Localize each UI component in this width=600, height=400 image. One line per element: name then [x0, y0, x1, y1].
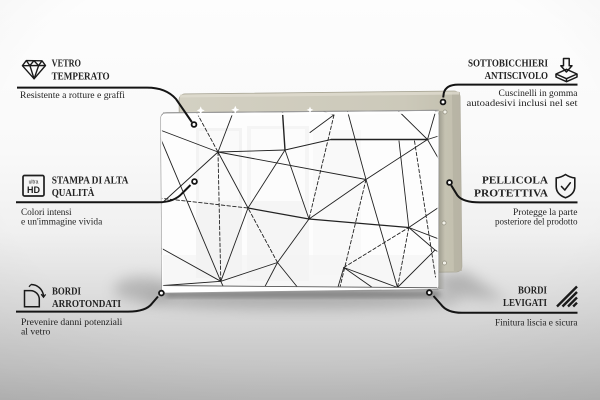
svg-text:Resistente a rotture e graffi: Resistente a rotture e graffi [20, 90, 125, 101]
svg-text:BORDI: BORDI [52, 287, 81, 298]
svg-text:posteriore del prodotto: posteriore del prodotto [495, 217, 578, 227]
svg-text:Finitura liscia e sicura: Finitura liscia e sicura [495, 318, 578, 328]
svg-text:HD: HD [27, 185, 40, 195]
svg-text:Cuscinelli in gomma: Cuscinelli in gomma [499, 89, 579, 99]
svg-text:PROTETTIVA: PROTETTIVA [474, 189, 548, 200]
svg-text:Colori intensi: Colori intensi [21, 208, 72, 218]
svg-text:ARROTONDATI: ARROTONDATI [52, 299, 121, 310]
svg-text:VETRO: VETRO [52, 59, 81, 70]
svg-text:e un'immagine vivida: e un'immagine vivida [21, 217, 103, 227]
svg-text:autoadesivi inclusi nel set: autoadesivi inclusi nel set [467, 99, 578, 109]
svg-text:PELLICOLA: PELLICOLA [482, 176, 548, 187]
svg-text:Prevenire danni potenziali: Prevenire danni potenziali [21, 318, 123, 328]
svg-text:BORDI: BORDI [518, 286, 547, 297]
svg-text:QUALITÀ: QUALITÀ [52, 187, 95, 199]
svg-text:al vetro: al vetro [21, 327, 51, 337]
svg-text:STAMPA DI ALTA: STAMPA DI ALTA [52, 176, 129, 187]
svg-text:ANTISCIVOLO: ANTISCIVOLO [485, 71, 548, 82]
svg-text:TEMPERATO: TEMPERATO [52, 72, 110, 83]
svg-text:LEVIGATI: LEVIGATI [503, 298, 547, 309]
svg-text:Protegge la parte: Protegge la parte [513, 208, 578, 218]
svg-text:SOTTOBICCHIERI: SOTTOBICCHIERI [468, 59, 548, 70]
